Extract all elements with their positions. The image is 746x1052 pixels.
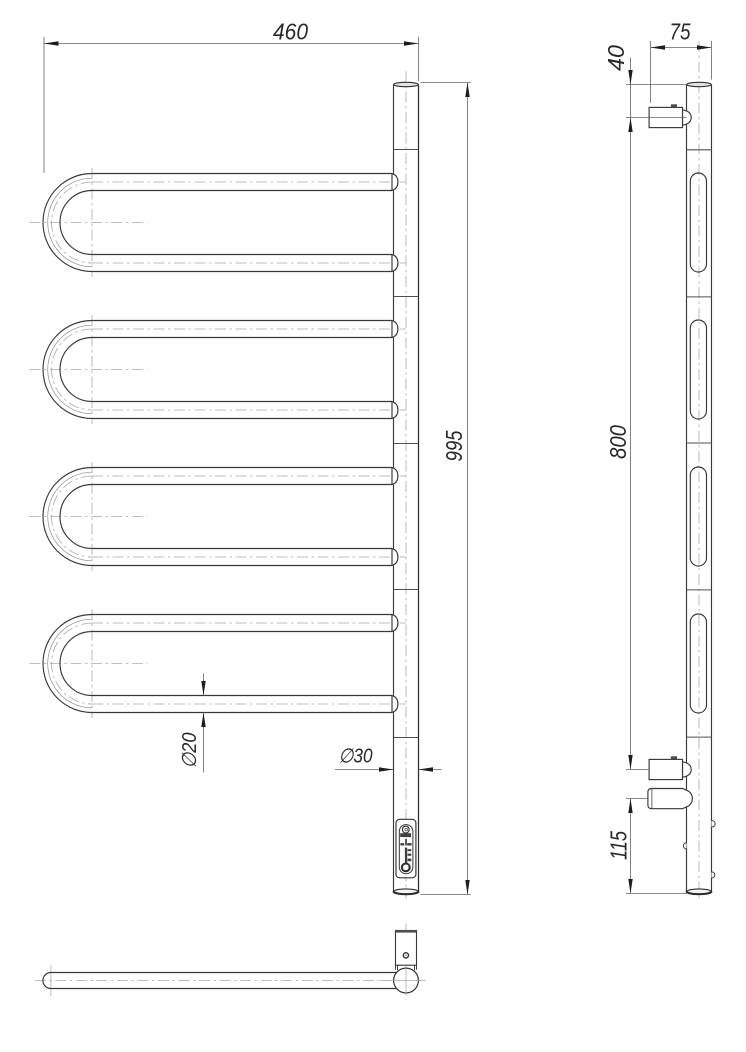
svg-text:75: 75 [670, 18, 691, 44]
svg-text:115: 115 [605, 831, 631, 860]
svg-text:460: 460 [273, 18, 308, 44]
svg-text:∅30: ∅30 [339, 746, 373, 768]
svg-text:800: 800 [605, 425, 631, 459]
svg-text:995: 995 [441, 430, 467, 461]
svg-text:40: 40 [603, 45, 629, 71]
svg-text:∅20: ∅20 [179, 733, 201, 769]
